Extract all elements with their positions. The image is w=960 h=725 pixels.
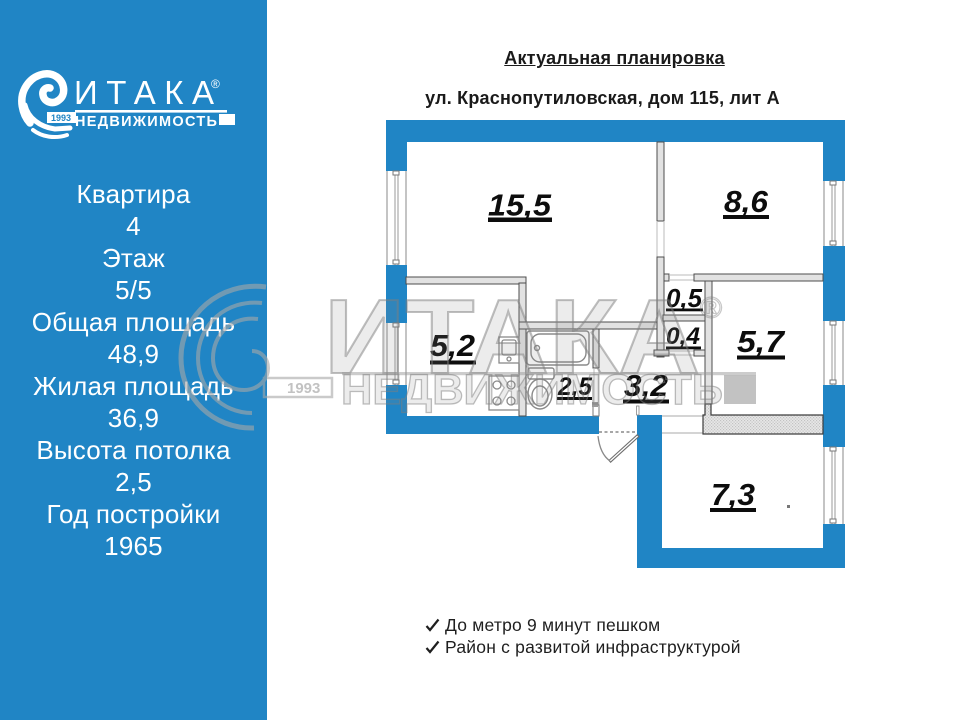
svg-text:1993: 1993 (287, 380, 320, 397)
svg-text:®: ® (700, 292, 722, 325)
svg-text:НЕДВИЖИМОСТЬ: НЕДВИЖИМОСТЬ (341, 366, 723, 414)
